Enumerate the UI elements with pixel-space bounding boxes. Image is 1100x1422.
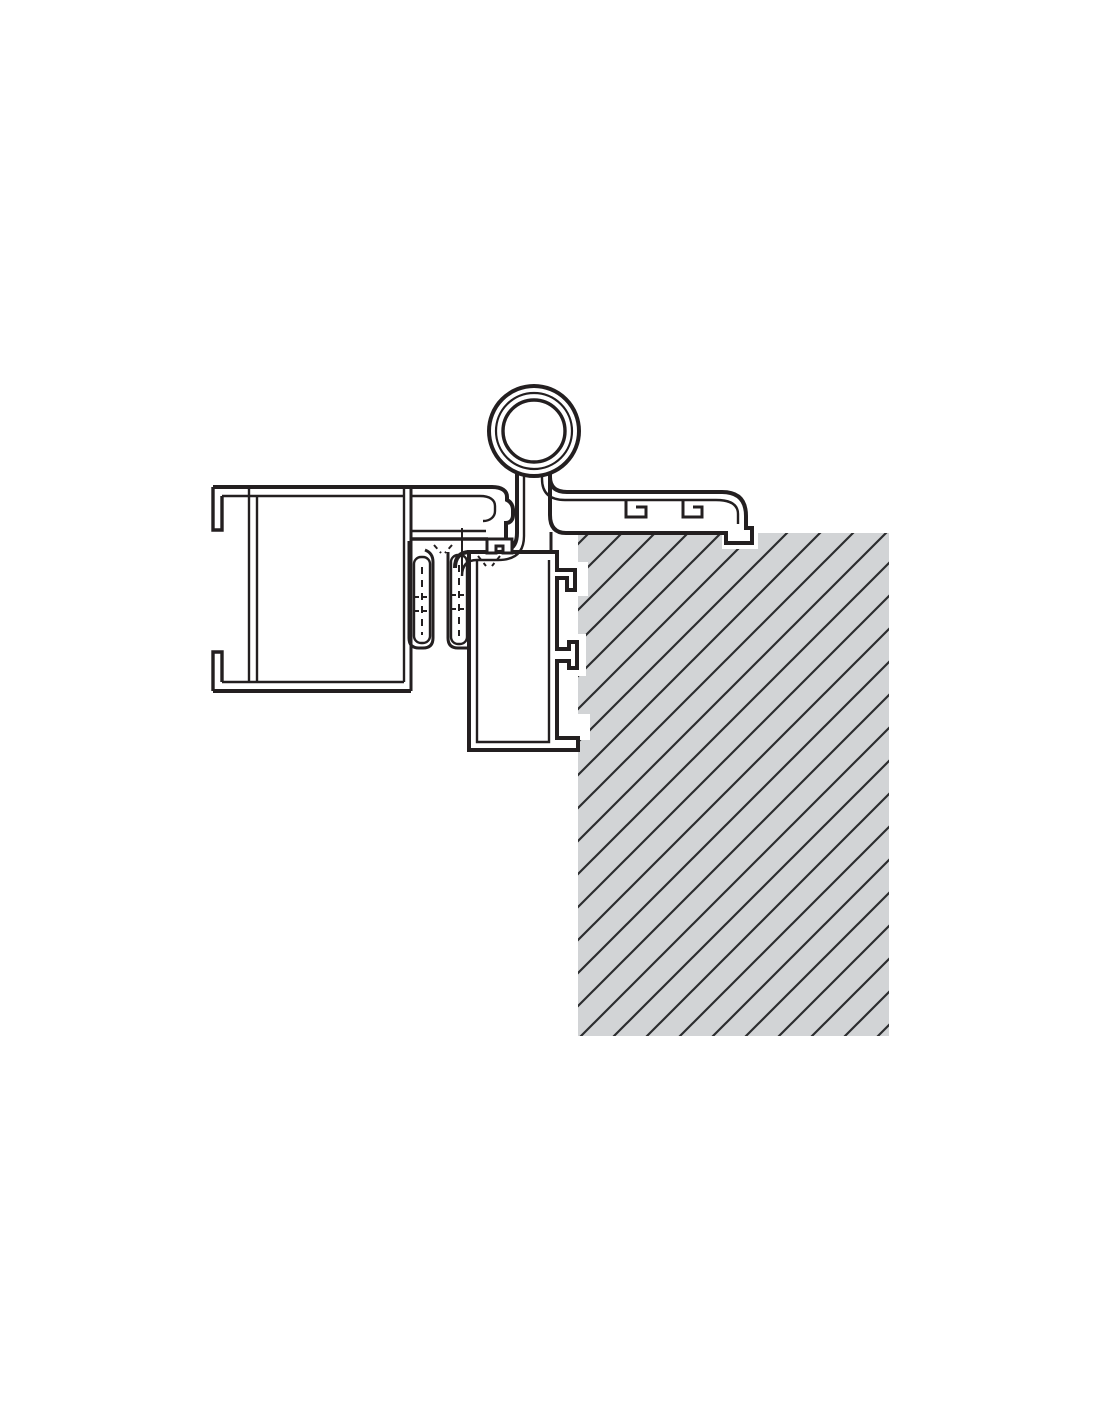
leaf-nose-inner-line bbox=[412, 496, 495, 521]
jamb-body-outline bbox=[469, 552, 578, 750]
leaf-hook-top-left bbox=[213, 487, 222, 530]
frame-cross-section-drawing bbox=[0, 0, 1100, 1422]
leaf-hook-bottom-left bbox=[213, 652, 222, 691]
hinge-knuckle bbox=[489, 386, 579, 476]
cover-trim-outline bbox=[550, 470, 752, 543]
wall-section bbox=[578, 533, 889, 1036]
technical-drawing-page bbox=[0, 0, 1100, 1422]
wall-hatching bbox=[578, 533, 889, 1036]
